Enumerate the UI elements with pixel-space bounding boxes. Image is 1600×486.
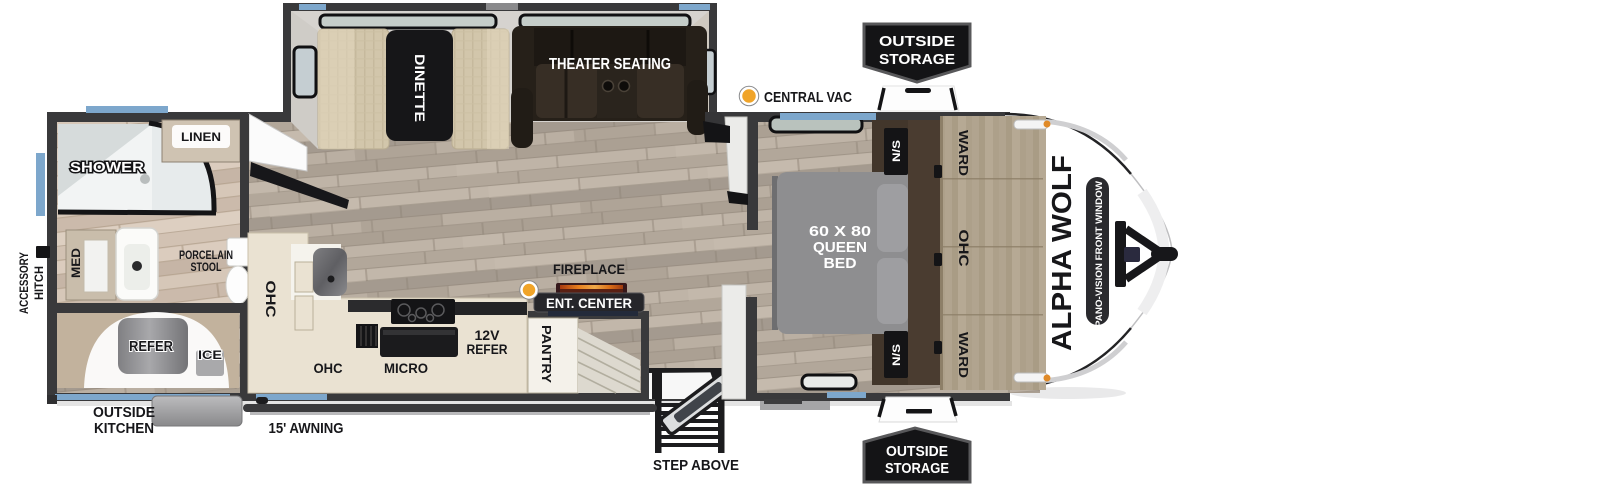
svg-text:MICRO: MICRO — [384, 361, 428, 376]
svg-text:N/S: N/S — [891, 344, 903, 366]
svg-text:STORAGE: STORAGE — [885, 461, 949, 477]
svg-text:STORAGE: STORAGE — [879, 51, 955, 68]
svg-text:OHC: OHC — [263, 281, 278, 318]
svg-text:15' AWNING: 15' AWNING — [269, 420, 344, 437]
svg-text:PANO-VISION FRONT WINDOW: PANO-VISION FRONT WINDOW — [1094, 180, 1104, 327]
svg-text:THEATER SEATING: THEATER SEATING — [549, 56, 671, 73]
svg-text:HITCH: HITCH — [32, 266, 46, 300]
svg-text:STEP ABOVE: STEP ABOVE — [653, 457, 739, 474]
svg-text:LINEN: LINEN — [181, 130, 221, 144]
svg-text:BED: BED — [824, 255, 857, 272]
svg-text:ALPHA WOLF: ALPHA WOLF — [1046, 155, 1077, 351]
svg-text:PANTRY: PANTRY — [539, 325, 554, 383]
svg-text:KITCHEN: KITCHEN — [94, 421, 154, 437]
svg-text:ENT. CENTER: ENT. CENTER — [546, 295, 632, 311]
svg-text:N/S: N/S — [891, 140, 903, 162]
svg-text:OUTSIDE: OUTSIDE — [93, 405, 155, 421]
svg-text:OHC: OHC — [956, 230, 972, 267]
svg-text:DINETTE: DINETTE — [412, 54, 427, 122]
svg-text:FIREPLACE: FIREPLACE — [553, 261, 625, 277]
svg-text:60 X 80: 60 X 80 — [809, 223, 871, 240]
svg-text:WARD: WARD — [956, 130, 971, 176]
svg-text:CENTRAL VAC: CENTRAL VAC — [764, 89, 852, 106]
svg-text:PORCELAIN: PORCELAIN — [179, 250, 233, 262]
svg-text:OUTSIDE: OUTSIDE — [879, 33, 955, 50]
svg-text:12V: 12V — [475, 328, 500, 343]
svg-text:WARD: WARD — [956, 332, 971, 378]
svg-text:STOOL: STOOL — [191, 262, 222, 274]
svg-text:QUEEN: QUEEN — [813, 239, 867, 256]
svg-text:SHOWER: SHOWER — [70, 159, 144, 176]
svg-text:REFER: REFER — [129, 338, 173, 355]
svg-text:MED: MED — [69, 248, 83, 278]
svg-text:ICE: ICE — [198, 350, 222, 362]
svg-text:REFER: REFER — [467, 342, 508, 357]
svg-text:OUTSIDE: OUTSIDE — [886, 444, 948, 460]
svg-text:ACCESSORY: ACCESSORY — [17, 252, 31, 314]
svg-text:OHC: OHC — [314, 361, 343, 376]
